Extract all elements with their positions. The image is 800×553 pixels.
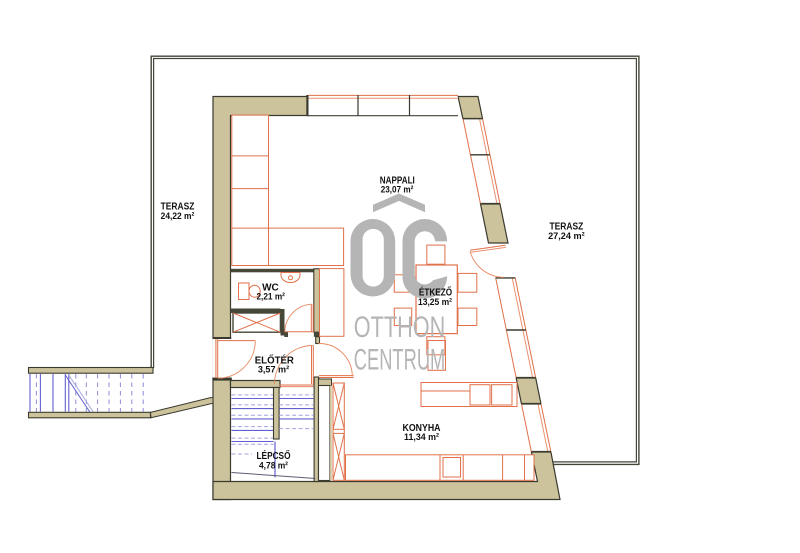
svg-text:2,21 m²: 2,21 m²	[256, 291, 285, 302]
svg-text:4,78 m²: 4,78 m²	[259, 460, 288, 471]
svg-text:24,22 m²: 24,22 m²	[161, 211, 195, 222]
svg-text:23,07 m²: 23,07 m²	[381, 184, 414, 195]
svg-text:27,24 m²: 27,24 m²	[548, 231, 585, 242]
svg-text:CENTRUM: CENTRUM	[354, 344, 446, 377]
svg-text:13,25 m²: 13,25 m²	[418, 297, 452, 308]
svg-text:3,57 m²: 3,57 m²	[258, 364, 289, 375]
svg-text:11,34 m²: 11,34 m²	[404, 432, 439, 443]
svg-text:OTTHON: OTTHON	[354, 311, 446, 344]
